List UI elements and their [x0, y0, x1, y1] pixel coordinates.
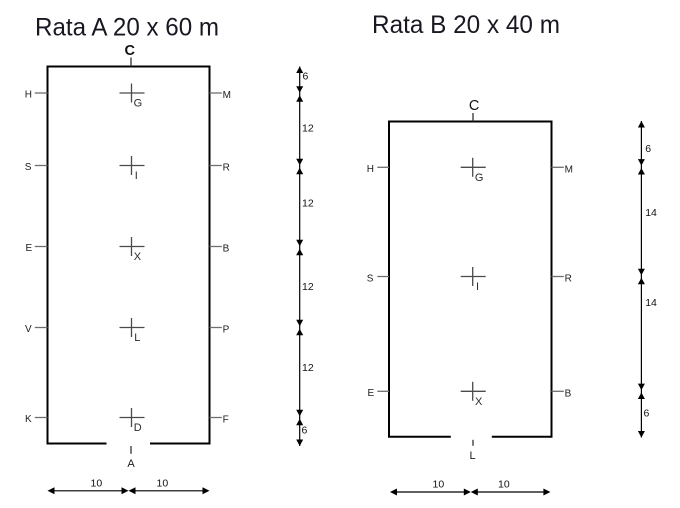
svg-text:Rata B 20 x 40 m: Rata B 20 x 40 m — [372, 11, 560, 39]
svg-text:6: 6 — [645, 143, 651, 155]
svg-text:P: P — [223, 325, 230, 336]
svg-text:I: I — [135, 170, 138, 182]
svg-text:S: S — [25, 162, 32, 173]
svg-text:10: 10 — [157, 478, 169, 490]
svg-text:G: G — [475, 172, 484, 184]
svg-text:R: R — [223, 163, 230, 174]
svg-text:X: X — [475, 396, 483, 408]
svg-text:M: M — [223, 90, 231, 101]
svg-text:E: E — [368, 388, 375, 399]
svg-text:10: 10 — [91, 478, 103, 490]
svg-text:12: 12 — [302, 362, 314, 374]
svg-text:12: 12 — [302, 198, 314, 210]
svg-text:V: V — [25, 324, 32, 335]
svg-text:B: B — [565, 388, 572, 399]
svg-text:10: 10 — [498, 479, 510, 491]
svg-text:M: M — [565, 164, 573, 175]
svg-text:A: A — [127, 458, 135, 470]
svg-text:12: 12 — [302, 281, 314, 293]
svg-text:14: 14 — [645, 207, 657, 219]
svg-text:S: S — [367, 273, 374, 284]
svg-text:L: L — [470, 450, 476, 462]
svg-text:C: C — [125, 43, 136, 59]
svg-text:F: F — [223, 415, 229, 426]
svg-text:I: I — [476, 281, 479, 293]
svg-text:10: 10 — [433, 479, 445, 491]
svg-text:H: H — [367, 164, 374, 175]
svg-text:G: G — [134, 98, 143, 110]
svg-text:R: R — [565, 274, 572, 285]
svg-text:B: B — [223, 244, 230, 255]
svg-text:12: 12 — [302, 123, 314, 135]
svg-text:H: H — [25, 90, 32, 101]
svg-text:14: 14 — [645, 297, 657, 309]
svg-text:D: D — [134, 422, 142, 434]
svg-text:L: L — [134, 332, 140, 344]
svg-text:6: 6 — [303, 71, 309, 83]
svg-text:X: X — [134, 251, 142, 263]
svg-text:E: E — [26, 243, 33, 254]
svg-text:6: 6 — [644, 408, 650, 420]
svg-text:C: C — [469, 98, 479, 114]
svg-text:6: 6 — [302, 425, 308, 437]
svg-text:K: K — [25, 414, 32, 425]
svg-text:Rata A 20 x 60 m: Rata A 20 x 60 m — [35, 14, 219, 42]
